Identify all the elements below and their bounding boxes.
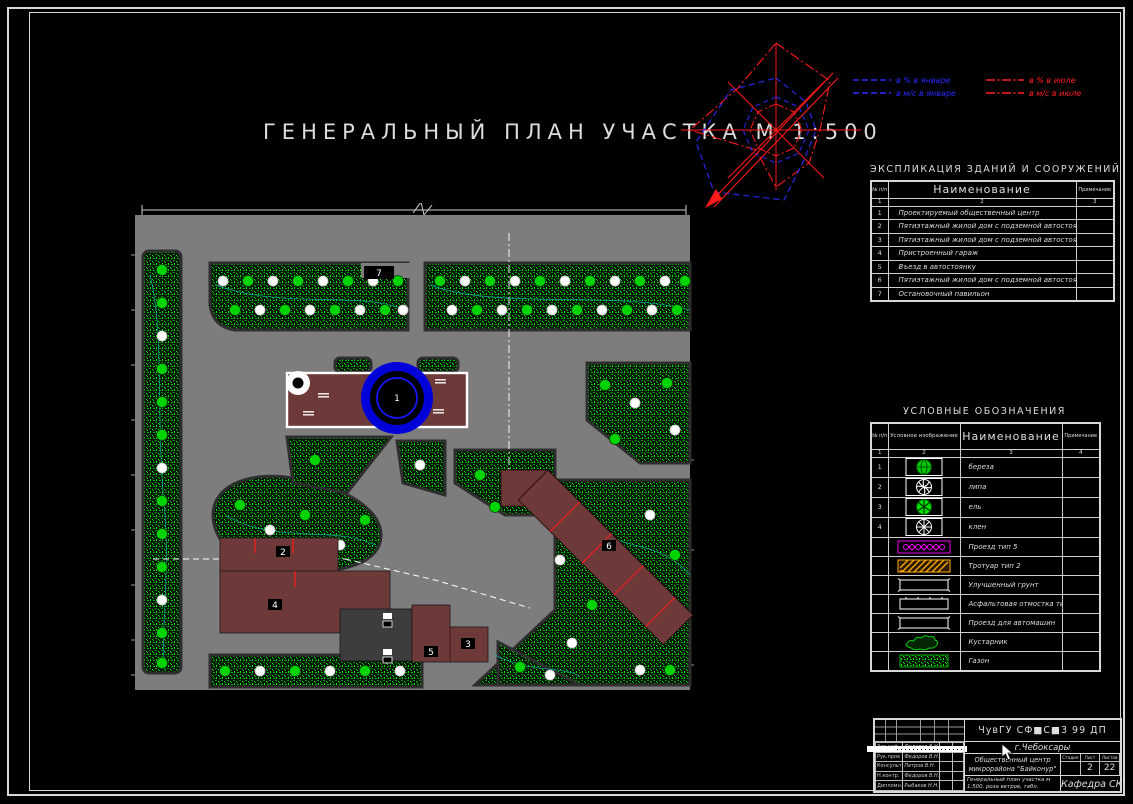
legend-row-note bbox=[1062, 556, 1100, 575]
signature-field bbox=[940, 781, 953, 791]
maple-tree-symbol bbox=[888, 517, 960, 537]
explication-title: ЭКСПЛИКАЦИЯ ЗДАНИЙ И СООРУЖЕНИЙ bbox=[870, 164, 1113, 175]
deciduous-tree bbox=[510, 276, 520, 286]
signature-row: Н.контр.Федоров В.Н. bbox=[876, 771, 964, 781]
signature-name: Петров В.Н. bbox=[903, 762, 940, 772]
deciduous-tree bbox=[610, 276, 620, 286]
legend-row-note bbox=[1062, 651, 1100, 671]
evergreen-tree bbox=[157, 364, 168, 375]
explication-row-name: Пятиэтажный жилой дом с подземной автост… bbox=[888, 233, 1076, 247]
highlighted-cell[interactable] bbox=[867, 746, 967, 752]
explication-row-name: Пристроенный гараж bbox=[888, 247, 1076, 261]
evergreen-tree bbox=[515, 662, 526, 673]
explication-row-note bbox=[1076, 220, 1114, 234]
building-label-7: 7 bbox=[376, 269, 382, 279]
legend-row: 2липа bbox=[871, 477, 1100, 497]
legend-row-number: 1 bbox=[871, 457, 888, 477]
legend-row-name: береза bbox=[960, 457, 1062, 477]
deciduous-tree bbox=[255, 666, 265, 676]
deciduous-tree bbox=[567, 638, 577, 648]
department-name: Кафедра СК bbox=[1060, 776, 1120, 793]
evergreen-tree bbox=[393, 276, 404, 287]
explication-header-row: № п/п Наименование Примечание bbox=[871, 181, 1114, 198]
explication-row-note bbox=[1076, 233, 1114, 247]
signature-field bbox=[940, 752, 953, 762]
signature-role: Рук.прое bbox=[876, 752, 903, 762]
legend-row-number: 2 bbox=[871, 477, 888, 497]
svg-text:2: 2 bbox=[280, 548, 286, 558]
evergreen-tree bbox=[290, 666, 301, 677]
sheets-total: 22 bbox=[1100, 762, 1120, 775]
deciduous-tree bbox=[268, 276, 278, 286]
signature-row: КонсультПетров В.Н. bbox=[876, 762, 964, 772]
cad-drawing-sheet: { "sheet": { "title": "ГЕНЕРАЛЬНЫЙ ПЛАН … bbox=[0, 0, 1133, 804]
legend-title: УСЛОВНЫЕ ОБОЗНАЧЕНИЯ bbox=[870, 406, 1099, 417]
legend-table: № п/п Условное изображение Наименование … bbox=[870, 422, 1101, 672]
signature-role: Консульт bbox=[876, 762, 903, 772]
title-block: Зав.каф.Федоров В.Н.Рук.проеФедоров В.Н.… bbox=[873, 718, 1122, 793]
asphalt-apron-outline bbox=[888, 594, 960, 613]
building-1-public-center bbox=[286, 362, 467, 434]
evergreen-tree bbox=[485, 276, 496, 287]
evergreen-tree bbox=[280, 305, 291, 316]
explication-number-row: 1 2 3 bbox=[871, 198, 1114, 206]
explication-row-note bbox=[1076, 287, 1114, 301]
legend-line-sample bbox=[853, 78, 891, 82]
explication-row: 6Пятиэтажный жилой дом с подземной автос… bbox=[871, 274, 1114, 288]
explication-row: 7Остановочный павильон bbox=[871, 287, 1114, 301]
building-label-3: 3 bbox=[461, 638, 475, 650]
driveway-type5-hatch bbox=[888, 537, 960, 556]
wind-legend-item: в м/с в январе bbox=[853, 88, 956, 98]
wind-legend-item: в % в июле bbox=[986, 75, 1081, 85]
legend-row-number bbox=[871, 651, 888, 671]
evergreen-tree bbox=[243, 276, 254, 287]
svg-text:3: 3 bbox=[465, 640, 471, 650]
deciduous-tree bbox=[447, 305, 457, 315]
evergreen-tree bbox=[157, 298, 168, 309]
evergreen-tree bbox=[360, 515, 371, 526]
dimension-line bbox=[142, 203, 686, 215]
building-label-1: 1 bbox=[390, 392, 404, 404]
legend-number-row: 1 2 3 4 bbox=[871, 449, 1100, 457]
evergreen-tree bbox=[680, 276, 691, 287]
linden-tree-symbol bbox=[888, 477, 960, 497]
legend-row-note bbox=[1062, 613, 1100, 632]
parking-entrance-building bbox=[340, 609, 412, 663]
svg-text:7: 7 bbox=[376, 269, 382, 279]
legend-row: 4клен bbox=[871, 517, 1100, 537]
explication-row: 3Пятиэтажный жилой дом с подземной автос… bbox=[871, 233, 1114, 247]
legend-row-name: Тротуар тип 2 bbox=[960, 556, 1062, 575]
legend-body: 1береза2липа3ель4кленПроезд тип 5Тротуар… bbox=[871, 457, 1100, 671]
explication-row: 5Въезд в автостоянку bbox=[871, 260, 1114, 274]
evergreen-tree bbox=[157, 265, 168, 276]
evergreen-tree bbox=[472, 305, 483, 316]
car-driveway-outline bbox=[888, 613, 960, 632]
evergreen-tree bbox=[475, 470, 486, 481]
deciduous-tree bbox=[497, 305, 507, 315]
legend-row-name: липа bbox=[960, 477, 1062, 497]
signature-name: Рыбаков Н.Н. bbox=[903, 781, 940, 791]
mouse-cursor bbox=[1001, 743, 1015, 761]
signature-role: Н.контр. bbox=[876, 771, 903, 781]
sheets-label: Листов bbox=[1100, 754, 1120, 762]
evergreen-tree bbox=[572, 305, 583, 316]
legend-line-sample bbox=[986, 78, 1024, 82]
evergreen-tree bbox=[310, 455, 321, 466]
deciduous-tree bbox=[265, 525, 275, 535]
evergreen-tree bbox=[585, 276, 596, 287]
evergreen-tree bbox=[622, 305, 633, 316]
sheet-number: 2 bbox=[1081, 762, 1101, 775]
explication-row-note bbox=[1076, 206, 1114, 220]
deciduous-tree bbox=[355, 305, 365, 315]
deciduous-tree bbox=[670, 425, 680, 435]
deciduous-tree bbox=[398, 305, 408, 315]
signature-row: Дипломн.Рыбаков Н.Н. bbox=[876, 781, 964, 791]
deciduous-tree bbox=[255, 305, 265, 315]
revision-grid bbox=[875, 720, 964, 742]
svg-text:5: 5 bbox=[428, 648, 434, 658]
deciduous-tree bbox=[318, 276, 328, 286]
legend-row-number bbox=[871, 556, 888, 575]
legend-row: Асфальтовая отмостка тип 2 bbox=[871, 594, 1100, 613]
legend-row-name: Асфальтовая отмостка тип 2 bbox=[960, 594, 1062, 613]
legend-row-number: 4 bbox=[871, 517, 888, 537]
legend-block: УСЛОВНЫЕ ОБОЗНАЧЕНИЯ № п/п Условное изоб… bbox=[870, 406, 1099, 672]
spruce-tree-symbol bbox=[888, 497, 960, 517]
deciduous-tree bbox=[545, 670, 555, 680]
deciduous-tree bbox=[157, 331, 167, 341]
explication-row: 1Проектируемый общественный центр bbox=[871, 206, 1114, 220]
sheet-info: Стадия Лист Листов 2 22 bbox=[1060, 754, 1120, 776]
sheet-label: Лист bbox=[1081, 754, 1101, 762]
legend-line-sample bbox=[853, 91, 891, 95]
deciduous-tree bbox=[395, 666, 405, 676]
legend-row-number: 3 bbox=[871, 497, 888, 517]
deciduous-tree bbox=[157, 595, 167, 605]
explication-row-name: Пятиэтажный жилой дом с подземной автост… bbox=[888, 274, 1076, 288]
legend-row-name: Проезд тип 5 bbox=[960, 537, 1062, 556]
legend-row: Газон bbox=[871, 651, 1100, 671]
signature-row: Рук.проеФедоров В.Н. bbox=[876, 752, 964, 762]
explication-row-number: 5 bbox=[871, 260, 888, 274]
evergreen-tree bbox=[360, 666, 371, 677]
explication-table: № п/п Наименование Примечание 1 2 3 1Про… bbox=[870, 180, 1115, 302]
deciduous-tree bbox=[645, 510, 655, 520]
lawn-symbol bbox=[888, 651, 960, 671]
date-field bbox=[953, 762, 964, 772]
deciduous-tree bbox=[635, 665, 645, 675]
legend-row-note bbox=[1062, 537, 1100, 556]
explication-col-name: Наименование bbox=[888, 181, 1076, 198]
legend-col-num: № п/п bbox=[871, 423, 888, 449]
deciduous-tree bbox=[305, 305, 315, 315]
legend-row-note bbox=[1062, 477, 1100, 497]
signature-field bbox=[940, 771, 953, 781]
legend-row-note bbox=[1062, 517, 1100, 537]
deciduous-tree bbox=[555, 555, 565, 565]
legend-row-number bbox=[871, 613, 888, 632]
date-field bbox=[953, 781, 964, 791]
site-plan: 1 2 3 4 5 6 7 bbox=[130, 203, 695, 695]
signature-name: Федоров В.Н. bbox=[903, 771, 940, 781]
legend-row-number bbox=[871, 575, 888, 594]
evergreen-tree bbox=[293, 276, 304, 287]
evergreen-tree bbox=[157, 562, 168, 573]
legend-col-note: Примечание bbox=[1062, 423, 1100, 449]
svg-text:1: 1 bbox=[394, 394, 400, 404]
legend-row-name: Улучшенный грунт bbox=[960, 575, 1062, 594]
explication-row-note bbox=[1076, 260, 1114, 274]
deciduous-tree bbox=[630, 398, 640, 408]
deciduous-tree bbox=[597, 305, 607, 315]
evergreen-tree bbox=[380, 305, 391, 316]
legend-row-name: ель bbox=[960, 497, 1062, 517]
wind-legend-item: в % в январе bbox=[853, 75, 956, 85]
explication-body: 1Проектируемый общественный центр2Пятиэт… bbox=[871, 206, 1114, 301]
wind-legend-label: в м/с в июле bbox=[1029, 89, 1081, 98]
deciduous-tree bbox=[218, 276, 228, 286]
legend-row-name: Газон bbox=[960, 651, 1062, 671]
evergreen-tree bbox=[157, 496, 168, 507]
evergreen-tree bbox=[157, 658, 168, 669]
explication-col-num: № п/п bbox=[871, 181, 888, 198]
birch-tree-symbol bbox=[888, 457, 960, 477]
legend-row-note bbox=[1062, 575, 1100, 594]
deciduous-tree bbox=[325, 666, 335, 676]
city-label: г.Чебоксары bbox=[964, 742, 1120, 754]
legend-row: Тротуар тип 2 bbox=[871, 556, 1100, 575]
wind-rose-axes bbox=[681, 43, 861, 190]
wind-legend-item: в м/с в июле bbox=[986, 88, 1081, 98]
evergreen-tree bbox=[535, 276, 546, 287]
legend-line-sample bbox=[986, 91, 1024, 95]
evergreen-tree bbox=[330, 305, 341, 316]
evergreen-tree bbox=[157, 430, 168, 441]
stage-value bbox=[1061, 762, 1081, 775]
svg-text:4: 4 bbox=[272, 601, 278, 611]
sidewalk-type2-hatch bbox=[888, 556, 960, 575]
building-label-5: 5 bbox=[424, 646, 438, 658]
evergreen-tree bbox=[662, 378, 673, 389]
date-field bbox=[953, 752, 964, 762]
legend-header-row: № п/п Условное изображение Наименование … bbox=[871, 423, 1100, 449]
explication-col-note: Примечание bbox=[1076, 181, 1114, 198]
building-label-2: 2 bbox=[276, 546, 290, 558]
wind-legend-july: в % в июлев м/с в июле bbox=[986, 75, 1081, 98]
legend-row: Проезд тип 5 bbox=[871, 537, 1100, 556]
explication-row-name: Проектируемый общественный центр bbox=[888, 206, 1076, 220]
date-field bbox=[953, 771, 964, 781]
signature-name: Федоров В.Н. bbox=[903, 752, 940, 762]
signature-field bbox=[940, 762, 953, 772]
legend-row-number bbox=[871, 537, 888, 556]
wind-legend-label: в м/с в январе bbox=[896, 89, 956, 98]
improved-soil-outline bbox=[888, 575, 960, 594]
legend-col-name: Наименование bbox=[960, 423, 1062, 449]
explication-row-name: Пятиэтажный жилой дом с подземной автост… bbox=[888, 220, 1076, 234]
evergreen-tree bbox=[665, 665, 676, 676]
legend-row: 3ель bbox=[871, 497, 1100, 517]
building-label-4: 4 bbox=[268, 599, 282, 611]
deciduous-tree bbox=[547, 305, 557, 315]
drawing-title: Генеральный план участка м 1:500, роза в… bbox=[964, 776, 1060, 793]
evergreen-tree bbox=[157, 628, 168, 639]
explication-row-name: Въезд в автостоянку bbox=[888, 260, 1076, 274]
deciduous-tree bbox=[157, 463, 167, 473]
deciduous-tree bbox=[460, 276, 470, 286]
legend-row-number bbox=[871, 632, 888, 651]
wind-legend-label: в % в июле bbox=[1029, 76, 1076, 85]
evergreen-tree bbox=[635, 276, 646, 287]
evergreen-tree bbox=[157, 529, 168, 540]
explication-row-number: 7 bbox=[871, 287, 888, 301]
legend-row-note bbox=[1062, 497, 1100, 517]
signature-role: Дипломн. bbox=[876, 781, 903, 791]
legend-row: Проезд для автомашин bbox=[871, 613, 1100, 632]
explication-row-note bbox=[1076, 247, 1114, 261]
evergreen-tree bbox=[670, 550, 681, 561]
explication-row: 4Пристроенный гараж bbox=[871, 247, 1114, 261]
evergreen-tree bbox=[587, 600, 598, 611]
evergreen-tree bbox=[490, 502, 501, 513]
wind-rose-july-percent-polygon bbox=[690, 43, 830, 187]
evergreen-tree bbox=[672, 305, 683, 316]
explication-row-note bbox=[1076, 274, 1114, 288]
evergreen-tree bbox=[235, 500, 246, 511]
evergreen-tree bbox=[343, 276, 354, 287]
legend-row-number bbox=[871, 594, 888, 613]
stage-label: Стадия bbox=[1061, 754, 1081, 762]
legend-row: 1береза bbox=[871, 457, 1100, 477]
evergreen-tree bbox=[157, 397, 168, 408]
shrub-symbol bbox=[888, 632, 960, 651]
explication-row-number: 2 bbox=[871, 220, 888, 234]
explication-row-number: 3 bbox=[871, 233, 888, 247]
deciduous-tree bbox=[660, 276, 670, 286]
evergreen-tree bbox=[600, 380, 611, 391]
evergreen-tree bbox=[435, 276, 446, 287]
wind-legend-january: в % в январев м/с в январе bbox=[853, 75, 956, 98]
evergreen-tree bbox=[522, 305, 533, 316]
svg-text:6: 6 bbox=[606, 542, 612, 552]
organization-code: ЧувГУ СФ■С■3 99 ДП bbox=[964, 720, 1120, 742]
evergreen-tree bbox=[610, 434, 621, 445]
legend-row-name: Кустарник bbox=[960, 632, 1062, 651]
legend-row-note bbox=[1062, 632, 1100, 651]
legend-row: Улучшенный грунт bbox=[871, 575, 1100, 594]
wind-legend-label: в % в январе bbox=[896, 76, 950, 85]
evergreen-tree bbox=[230, 305, 241, 316]
legend-row-name: клен bbox=[960, 517, 1062, 537]
explication-row-number: 4 bbox=[871, 247, 888, 261]
legend-col-symbol: Условное изображение bbox=[888, 423, 960, 449]
deciduous-tree bbox=[415, 460, 425, 470]
explication-row: 2Пятиэтажный жилой дом с подземной автос… bbox=[871, 220, 1114, 234]
wind-rose bbox=[665, 25, 880, 210]
deciduous-tree bbox=[560, 276, 570, 286]
legend-row-note bbox=[1062, 457, 1100, 477]
explication-block: ЭКСПЛИКАЦИЯ ЗДАНИЙ И СООРУЖЕНИЙ № п/п На… bbox=[870, 164, 1113, 302]
legend-row-name: Проезд для автомашин bbox=[960, 613, 1062, 632]
deciduous-tree bbox=[647, 305, 657, 315]
legend-row: Кустарник bbox=[871, 632, 1100, 651]
building-label-6: 6 bbox=[602, 540, 616, 552]
explication-row-number: 1 bbox=[871, 206, 888, 220]
evergreen-tree bbox=[220, 666, 231, 677]
explication-row-number: 6 bbox=[871, 274, 888, 288]
explication-row-name: Остановочный павильон bbox=[888, 287, 1076, 301]
legend-row-note bbox=[1062, 594, 1100, 613]
evergreen-tree bbox=[300, 510, 311, 521]
